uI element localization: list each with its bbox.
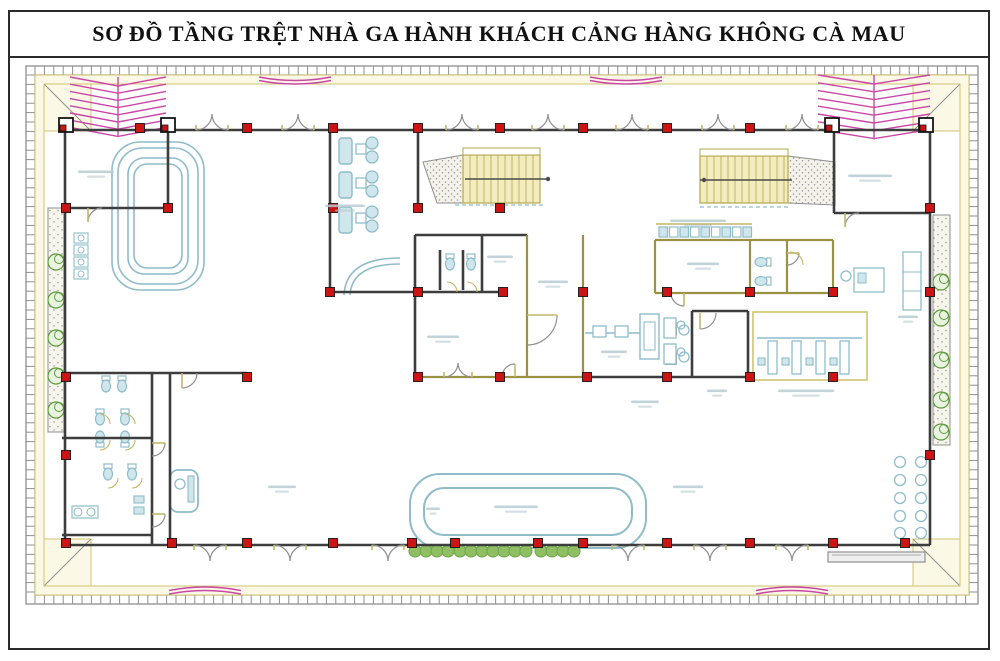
- bench-seat-icon: [670, 227, 679, 237]
- column-marker: [326, 288, 335, 297]
- room-label-smudge: [487, 256, 513, 259]
- room-label-smudge: [546, 286, 561, 288]
- room-label-smudge: [631, 401, 659, 404]
- table-icon: [356, 178, 366, 188]
- column-marker: [829, 539, 838, 548]
- room-label-smudge: [684, 225, 712, 227]
- room-label-smudge: [335, 210, 355, 212]
- column-marker: [901, 539, 910, 548]
- room-label-smudge: [695, 268, 711, 270]
- column-marker: [62, 373, 71, 382]
- column-marker: [168, 539, 177, 548]
- room-label-smudge: [427, 336, 459, 339]
- room-label-smudge: [673, 486, 703, 489]
- column-marker: [926, 288, 935, 297]
- column-marker: [583, 373, 592, 382]
- column-marker: [746, 124, 755, 133]
- xray-tray-icon: [593, 326, 606, 337]
- room-label-smudge: [707, 390, 727, 393]
- column-marker: [926, 204, 935, 213]
- room-label-smudge: [898, 316, 918, 319]
- screenshot-root: SƠ ĐỒ TẦNG TRỆT NHÀ GA HÀNH KHÁCH CẢNG H…: [0, 0, 1000, 661]
- column-marker: [414, 373, 423, 382]
- shrub-icon: [487, 545, 499, 557]
- toilet-bowl: [755, 277, 767, 286]
- column-marker: [746, 288, 755, 297]
- column-marker: [829, 373, 838, 382]
- column-marker: [579, 124, 588, 133]
- office-desk-icon: [664, 318, 676, 338]
- toilet-bowl: [467, 258, 476, 270]
- room-label-smudge: [538, 281, 568, 284]
- room-label-smudge: [687, 263, 719, 266]
- column-marker: [243, 539, 252, 548]
- sofa-icon: [339, 138, 352, 164]
- column-marker: [579, 288, 588, 297]
- room-label-smudge: [494, 261, 507, 263]
- column-marker: [329, 539, 338, 548]
- toilet-icon: [104, 464, 113, 480]
- corner-post-pad: [60, 125, 66, 131]
- floor-plan-drawing: [0, 0, 1000, 661]
- column-marker: [329, 124, 338, 133]
- porch-bench: [828, 552, 925, 562]
- column-marker: [164, 204, 173, 213]
- room-label-smudge: [859, 180, 881, 182]
- column-marker: [496, 124, 505, 133]
- toilet-icon: [467, 254, 476, 270]
- room-label-smudge: [778, 390, 834, 393]
- cabinet-icon: [903, 252, 921, 310]
- bench-seat-icon: [722, 227, 731, 237]
- column-marker: [496, 373, 505, 382]
- checkin-counter-icon: [840, 341, 849, 374]
- room-label-smudge: [78, 171, 114, 174]
- counter-seat-icon: [758, 358, 765, 365]
- room-label-smudge: [848, 175, 892, 178]
- column-marker: [829, 288, 838, 297]
- bench-seat-icon: [733, 227, 742, 237]
- toilet-icon: [755, 258, 771, 267]
- toilet-icon: [121, 409, 130, 425]
- shrub-icon: [509, 545, 521, 557]
- column-marker: [62, 204, 71, 213]
- desk-monitor-icon: [858, 273, 866, 283]
- room-label-smudge: [681, 491, 696, 493]
- bench-seat-icon: [701, 227, 710, 237]
- counter-seat-icon: [806, 358, 813, 365]
- column-marker: [663, 124, 672, 133]
- column-marker: [414, 204, 423, 213]
- stair-landing-hatch: [788, 156, 835, 205]
- column-marker: [408, 539, 417, 548]
- table-icon: [356, 144, 366, 154]
- toilet-bowl: [128, 468, 137, 480]
- table-icon: [356, 213, 366, 223]
- room-label-smudge: [712, 395, 722, 397]
- chair-icon: [366, 220, 378, 232]
- column-marker: [663, 288, 672, 297]
- room-label-smudge: [426, 508, 440, 511]
- column-marker: [243, 373, 252, 382]
- column-marker: [663, 539, 672, 548]
- room-label-smudge: [268, 486, 296, 489]
- corner-post-pad: [920, 125, 926, 131]
- room-label-smudge: [903, 321, 913, 323]
- scanner-gate-icon: [640, 314, 659, 359]
- column-marker: [62, 539, 71, 548]
- toilet-icon: [96, 409, 105, 425]
- room-label-smudge: [608, 356, 621, 358]
- shrub-rows: [409, 545, 580, 557]
- column-marker: [746, 373, 755, 382]
- shrub-icon: [498, 545, 510, 557]
- toilet-bowl: [104, 468, 113, 480]
- column-marker: [746, 539, 755, 548]
- room-label-smudge: [670, 220, 726, 223]
- column-marker: [499, 288, 508, 297]
- column-marker: [926, 451, 935, 460]
- toilet-bowl: [755, 258, 767, 267]
- toilet-icon: [446, 254, 455, 270]
- sofa-icon: [339, 172, 352, 198]
- column-marker: [663, 373, 672, 382]
- toilet-bowl: [118, 380, 127, 392]
- room-label-smudge: [430, 513, 437, 515]
- toilet-bowl: [446, 258, 455, 270]
- shrub-icon: [557, 545, 569, 557]
- planter-strip: [48, 208, 64, 432]
- bench-seat-icon: [691, 227, 700, 237]
- bench-seat-icon: [712, 227, 721, 237]
- counter-seat-icon: [830, 358, 837, 365]
- column-marker: [62, 451, 71, 460]
- bench-seat-icon: [743, 227, 752, 237]
- sink-counter: [72, 506, 98, 518]
- room-label-smudge: [601, 351, 627, 354]
- office-desk-icon: [664, 344, 676, 364]
- column-marker: [534, 539, 543, 548]
- urinal-icon: [134, 507, 144, 514]
- room-label-smudge: [325, 205, 365, 208]
- column-marker: [579, 539, 588, 548]
- stair-top-edge: [463, 148, 540, 155]
- column-marker: [414, 124, 423, 133]
- stair-handrail-end: [546, 177, 550, 181]
- chair-icon: [366, 206, 378, 218]
- column-marker: [414, 288, 423, 297]
- toilet-bowl: [102, 380, 111, 392]
- column-marker: [451, 539, 460, 548]
- room-label-smudge: [792, 395, 820, 397]
- planter-strip: [933, 215, 950, 445]
- vanity-shelf: [188, 476, 194, 502]
- shrub-icon: [476, 545, 488, 557]
- checkin-counter-icon: [792, 341, 801, 374]
- shrub-icon: [431, 545, 443, 557]
- room-label-smudge: [638, 406, 652, 408]
- chair-icon: [366, 171, 378, 183]
- room-label-smudge: [275, 491, 289, 493]
- checkin-counter-icon: [816, 341, 825, 374]
- bench-seat-icon: [659, 227, 668, 237]
- counter-seat-icon: [782, 358, 789, 365]
- chair-icon: [366, 137, 378, 149]
- column-marker: [496, 204, 505, 213]
- room-label-smudge: [494, 506, 538, 509]
- room-label-smudge: [435, 341, 451, 343]
- shrub-icon: [520, 545, 532, 557]
- column-marker: [136, 124, 145, 133]
- toilet-icon: [118, 376, 127, 392]
- toilet-icon: [755, 277, 771, 286]
- chair-icon: [366, 185, 378, 197]
- bench-seat-icon: [680, 227, 689, 237]
- chair-icon: [366, 151, 378, 163]
- shrub-icon: [465, 545, 477, 557]
- column-marker: [243, 124, 252, 133]
- stair-handrail-end: [702, 178, 706, 182]
- shrub-icon: [420, 545, 432, 557]
- corner-post-pad: [826, 125, 832, 131]
- toilet-icon: [128, 464, 137, 480]
- xray-tray-icon: [615, 326, 628, 337]
- shrub-icon: [546, 545, 558, 557]
- urinal-icon: [134, 496, 144, 503]
- toilet-icon: [102, 376, 111, 392]
- corner-post-pad: [162, 125, 168, 131]
- room-label-smudge: [87, 176, 105, 178]
- checkin-counter-icon: [768, 341, 777, 374]
- stair-top-edge: [700, 149, 788, 156]
- room-label-smudge: [505, 511, 527, 513]
